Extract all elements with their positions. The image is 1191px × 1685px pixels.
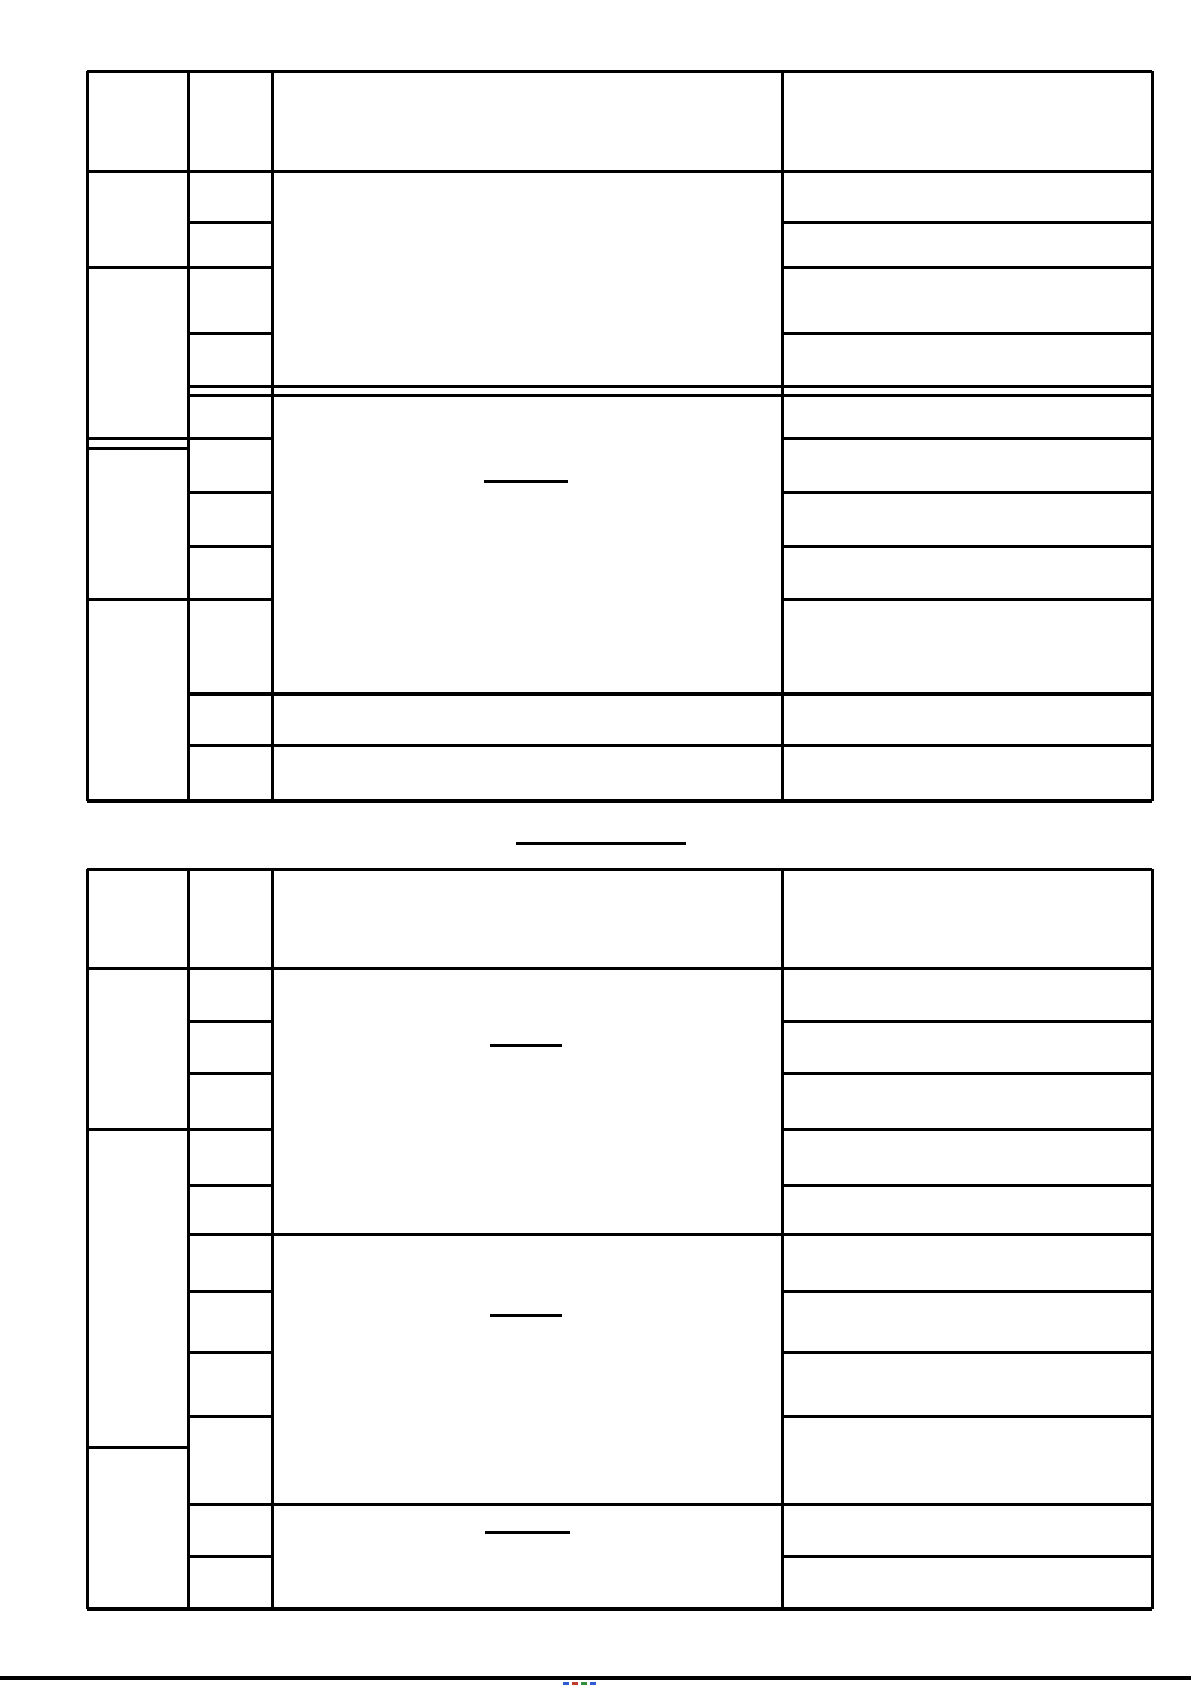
table-2-blank-underline: [490, 1044, 562, 1047]
table-2-border-line: [87, 1128, 272, 1131]
table-2-border-line: [188, 1503, 1152, 1506]
table-2-border-line: [782, 1555, 1152, 1558]
table-2-column-line: [1151, 869, 1154, 1609]
table-2-border-line: [87, 1607, 1152, 1611]
table-1-border-line: [782, 266, 1152, 269]
table-2-border-line: [188, 1072, 272, 1075]
table-1-border-line: [782, 437, 1152, 440]
table-2-border-line: [782, 1072, 1152, 1075]
table-2-blank-underline: [490, 1314, 562, 1317]
table-1-column-line: [86, 71, 89, 801]
table-2-column-line: [86, 869, 89, 1609]
table-2-border-line: [188, 1020, 272, 1023]
table-1-blank-underline: [484, 480, 568, 483]
table-1-border-line: [188, 394, 1152, 397]
table-2-column-line: [187, 869, 190, 1609]
table-1-border-line: [782, 545, 1152, 548]
table-2-border-line: [87, 1446, 188, 1449]
table-1-column-line: [187, 71, 190, 801]
table-1-border-line: [87, 598, 272, 601]
table-2-border-line: [188, 1415, 272, 1418]
table-1-column-line: [1151, 71, 1154, 801]
table-2-column-line: [271, 869, 274, 1609]
table-2-border-line: [782, 1128, 1152, 1131]
table-2-border-line: [782, 1184, 1152, 1187]
table-1-border-line: [188, 491, 272, 494]
table-2-border-line: [782, 1351, 1152, 1354]
table-2-border-line: [188, 1351, 272, 1354]
table-2-border-line: [188, 1184, 272, 1187]
table-1-border-line: [87, 447, 188, 450]
table-2-border-line: [782, 1020, 1152, 1023]
table-1-border-line: [782, 221, 1152, 224]
table-2-border-line: [188, 1290, 272, 1293]
table-1-border-line: [782, 332, 1152, 335]
table-2-border-line: [87, 967, 1152, 970]
table-2-border-line: [188, 1233, 1152, 1236]
table-1-border-line: [188, 385, 1152, 388]
table-1-column-line: [781, 71, 784, 801]
table-2-blank-underline: [485, 1531, 570, 1534]
table-1-border-line: [87, 437, 272, 440]
table-1-border-line: [87, 799, 1152, 803]
table-2-border-line: [782, 1290, 1152, 1293]
table-1-border-line: [87, 170, 1152, 173]
table-1-border-line: [87, 70, 1152, 73]
table-2-border-line: [782, 1415, 1152, 1418]
footer-rule: [0, 1676, 1191, 1680]
table-1-border-line: [782, 598, 1152, 601]
document-page: [0, 0, 1191, 1685]
table-1-border-line: [188, 332, 272, 335]
table-1-border-line: [188, 744, 1152, 747]
table-1-border-line: [188, 692, 1152, 696]
table-1-border-line: [188, 545, 272, 548]
table-2-border-line: [87, 868, 1152, 871]
table-1-column-line: [271, 71, 274, 801]
table-2-border-line: [188, 1555, 272, 1558]
table-1-border-line: [188, 221, 272, 224]
table-1-border-line: [87, 266, 272, 269]
table-1-border-line: [782, 491, 1152, 494]
between-tables-blank-underline: [516, 842, 686, 845]
table-2-column-line: [781, 869, 784, 1609]
